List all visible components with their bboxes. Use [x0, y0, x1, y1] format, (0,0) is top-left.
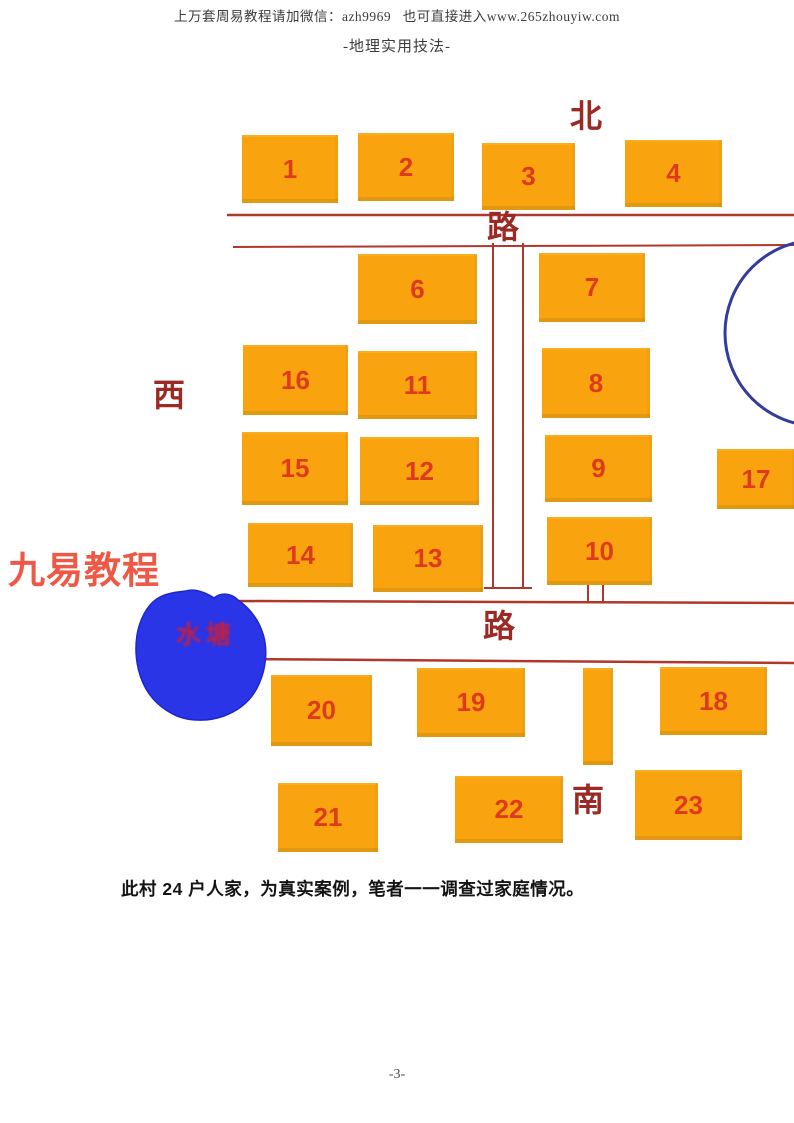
- house-number: 4: [666, 158, 680, 189]
- house-number: 8: [589, 368, 603, 399]
- house-number: 23: [674, 790, 703, 821]
- house-box-14: 14: [248, 523, 353, 587]
- house-box-23: 23: [635, 770, 742, 840]
- pond-shape: [136, 590, 266, 720]
- house-box-1: 1: [242, 135, 338, 203]
- house-number: 7: [585, 272, 599, 303]
- house-number: 11: [404, 370, 432, 401]
- house-number: 14: [286, 540, 315, 571]
- pond-label: 水塘: [176, 615, 236, 651]
- house-number: 13: [414, 543, 443, 574]
- house-box-unnumbered: [583, 668, 613, 765]
- house-box-9: 9: [545, 435, 652, 502]
- house-number: 2: [399, 152, 413, 183]
- document-page: 上万套周易教程请加微信：azh9969 也可直接进入www.265zhouyiw…: [0, 0, 794, 1123]
- west-label: 西: [153, 379, 185, 411]
- house-number: 3: [521, 161, 535, 192]
- house-box-8: 8: [542, 348, 650, 418]
- house-box-3: 3: [482, 143, 575, 210]
- house-number: 1: [283, 154, 297, 185]
- house-number: 6: [410, 274, 424, 305]
- house-number: 9: [591, 453, 605, 484]
- figure-caption: 此村 24 户人家，为真实案例，笔者一一调查过家庭情况。: [121, 876, 584, 901]
- house-box-21: 21: [278, 783, 378, 852]
- house-box-6: 6: [358, 254, 477, 324]
- road-label-bottom: 路: [483, 610, 515, 642]
- house-number: 17: [742, 464, 771, 495]
- house-box-18: 18: [660, 667, 767, 735]
- house-box-22: 22: [455, 776, 563, 843]
- house-number: 19: [457, 687, 486, 718]
- house-number: 12: [405, 456, 434, 487]
- house-box-17: 17: [717, 449, 794, 509]
- house-box-19: 19: [417, 668, 525, 737]
- house-number: 15: [281, 453, 310, 484]
- watermark-text: 九易教程: [8, 540, 160, 594]
- house-box-16: 16: [243, 345, 348, 415]
- house-number: 22: [495, 794, 524, 825]
- south-road-upper-line: [237, 601, 794, 603]
- house-box-10: 10: [547, 517, 652, 585]
- house-box-13: 13: [373, 525, 483, 592]
- house-box-2: 2: [358, 133, 454, 201]
- house-box-12: 12: [360, 437, 479, 505]
- north-road-lower-line: [233, 245, 794, 247]
- north-label: 北: [570, 100, 602, 132]
- house-number: 10: [585, 536, 614, 567]
- house-box-15: 15: [242, 432, 348, 505]
- house-number: 20: [307, 695, 336, 726]
- house-number: 21: [314, 802, 343, 833]
- boundary-circle: [725, 240, 794, 426]
- house-number: 16: [281, 365, 310, 396]
- page-number: -3-: [0, 1067, 794, 1083]
- south-road-lower-line: [238, 659, 794, 663]
- house-box-4: 4: [625, 140, 722, 207]
- house-box-20: 20: [271, 675, 372, 746]
- road-label-top: 路: [487, 211, 519, 243]
- house-number: 18: [699, 686, 728, 717]
- house-box-11: 11: [358, 351, 477, 419]
- south-label: 南: [572, 784, 604, 816]
- house-box-7: 7: [539, 253, 645, 322]
